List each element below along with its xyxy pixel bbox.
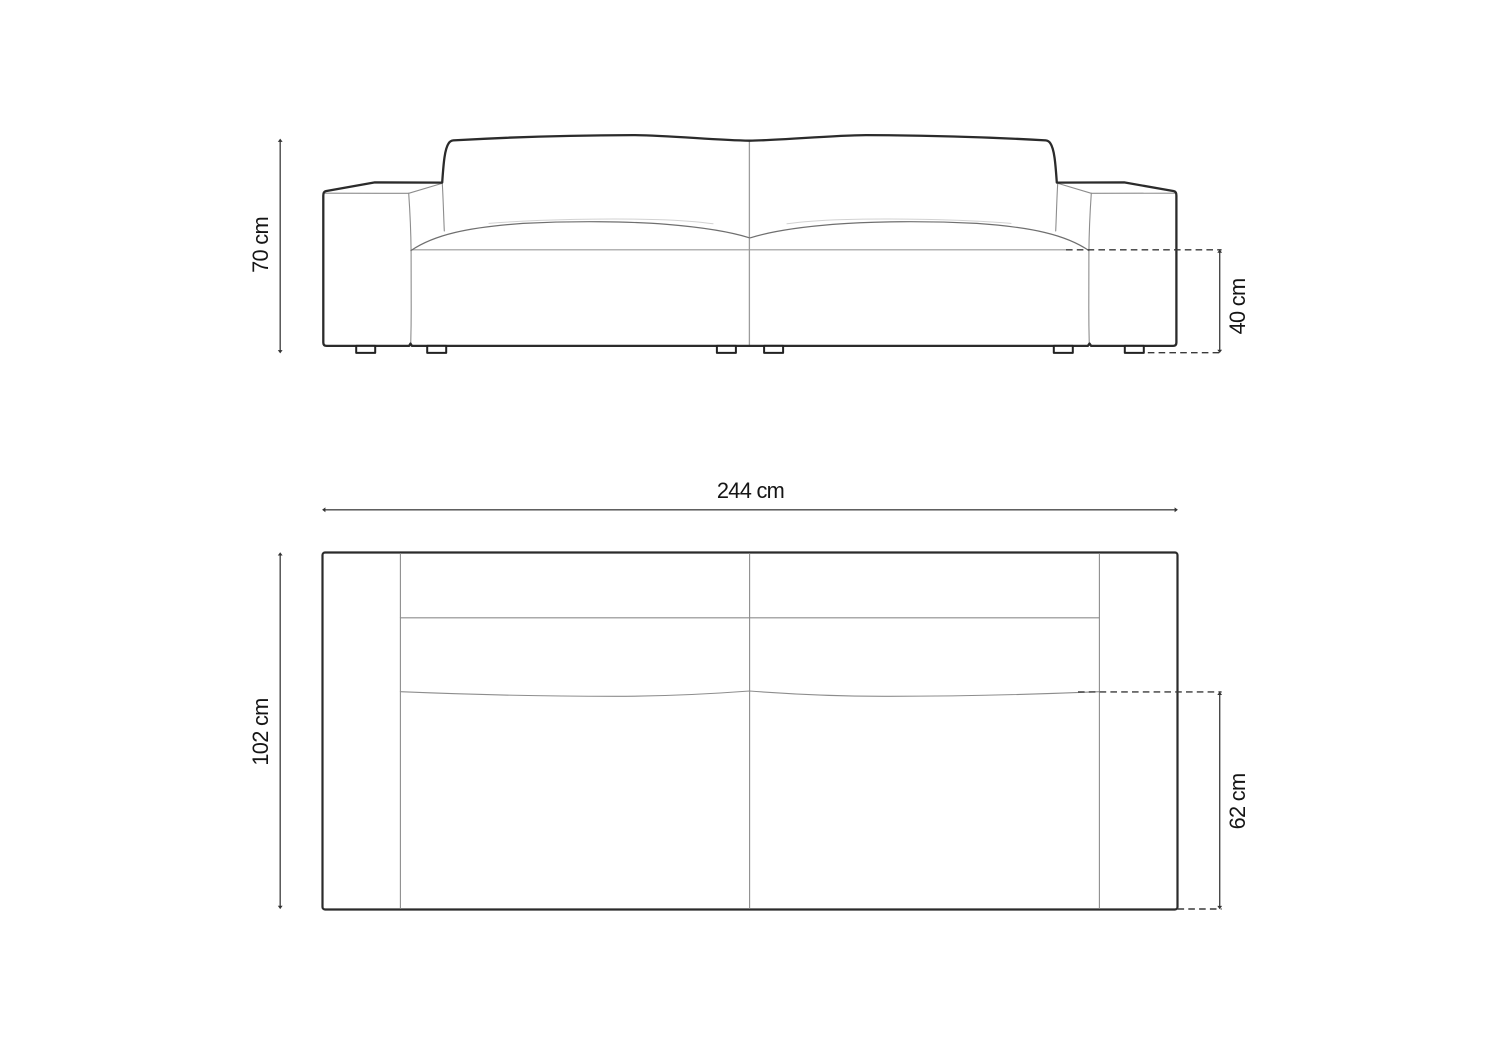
svg-text:70 cm: 70 cm [248, 217, 273, 273]
svg-text:62 cm: 62 cm [1225, 774, 1250, 830]
svg-text:244 cm: 244 cm [717, 478, 784, 503]
svg-text:102 cm: 102 cm [248, 698, 273, 765]
svg-text:40 cm: 40 cm [1225, 279, 1250, 335]
